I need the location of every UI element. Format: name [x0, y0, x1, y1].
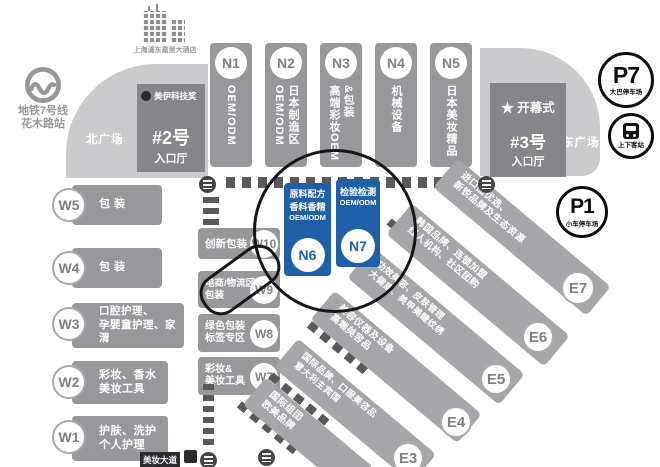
hall-n5: N5 日本美妆精品 [430, 43, 472, 167]
east-plaza-label: 东广场 [562, 134, 600, 150]
hall-w1-badge: W1 [52, 420, 86, 454]
hall-w4-label: 包 装 [99, 261, 162, 275]
parking-p7-badge: P7 大巴停车场 [598, 52, 654, 108]
entrance-3-number: #3号 [490, 128, 566, 153]
hall-w4-badge: W4 [52, 251, 86, 285]
shuttle-stop-label: 上下客站 [618, 139, 644, 149]
metro-station: 花木路站 [4, 118, 82, 131]
hall-e3-badge: E3 [392, 442, 424, 467]
hall-n3-badge: N3 [325, 47, 357, 79]
metro-station-label: 地铁7号线 花木路站 [4, 105, 82, 131]
hall-w5-label: 包 装 [99, 198, 162, 212]
booth-strip [203, 384, 214, 446]
hall-e4-badge: E4 [440, 406, 472, 438]
parking-p1-badge: P1 小车停车场 [556, 186, 608, 238]
hall-e5-badge: E5 [480, 363, 512, 395]
hall-w2: 彩妆、香水 美妆工具 [72, 361, 168, 404]
entrance-3-hall: ★ 开幕式 #3号 入口厅 [490, 83, 566, 177]
hotel-label: 上海浦东嘉里大酒店 [132, 45, 198, 55]
award-logo-icon [141, 91, 151, 101]
facility-icon [258, 449, 275, 466]
expo-floorplan-map: 北广场 东广场 地铁7号线 花木路站 上海浦东嘉里大酒店 美伊科技奖 #2号 入… [0, 0, 660, 467]
hall-n4: N4 机械设备 [375, 43, 417, 167]
hall-w2-badge: W2 [52, 365, 86, 399]
hall-n1: N1 OEM/ODM [210, 43, 252, 167]
entrance-2-hall: 美伊科技奖 #2号 入口厅 [137, 84, 205, 172]
shuttle-stop-badge: 上下客站 [608, 113, 654, 159]
bus-icon [623, 123, 639, 139]
star-icon: ★ [501, 101, 514, 115]
hall-n1-label: OEM/ODM [224, 85, 238, 163]
entrance-2-label: 入口厅 [137, 150, 205, 166]
north-plaza-label: 北广场 [86, 131, 124, 147]
hall-w3: 口腔护理、 孕婴童护理、家清 [72, 303, 184, 348]
hall-w3-badge: W3 [52, 307, 86, 341]
hall-e7-badge: E7 [561, 271, 595, 305]
hotel-icon [140, 8, 188, 44]
hall-n2-label2: OEM/ODM [272, 85, 286, 163]
parking-p7-label: 大巴停车场 [610, 86, 643, 96]
hall-n2: N2 日本制造区 OEM/ODM [265, 43, 307, 167]
facility-icon [200, 452, 217, 467]
partial-label: 美妆大道 [140, 452, 180, 467]
magnifier-circle [253, 149, 417, 313]
hall-n4-badge: N4 [380, 47, 412, 79]
hall-w1-label: 护肤、洗护 [99, 425, 168, 439]
hall-w8-badge: W8 [250, 320, 278, 348]
hall-n2-badge: N2 [270, 47, 302, 79]
parking-p1-label: 小车停车场 [566, 218, 599, 228]
hall-n4-label: 机械设备 [389, 85, 403, 163]
hall-n1-badge: N1 [215, 47, 247, 79]
hall-w3-label: 口腔护理、 [99, 305, 184, 319]
hall-n5-badge: N5 [435, 47, 467, 79]
metro-line: 地铁7号线 [4, 105, 82, 118]
opening-ceremony-label: 开幕式 [517, 101, 555, 115]
entrance-3-label: 入口厅 [490, 153, 566, 169]
hall-n5-label: 日本美妆精品 [444, 85, 458, 163]
award-label: 美伊科技奖 [154, 90, 197, 102]
facility-icon [199, 176, 216, 193]
partial-marker [184, 450, 197, 463]
metro-logo-icon [24, 66, 62, 104]
entrance-2-number: #2号 [137, 124, 205, 150]
hall-w2-label: 彩妆、香水 [99, 369, 168, 383]
hall-e6-badge: E6 [522, 321, 554, 353]
facility-icon [478, 176, 495, 193]
hall-w5-badge: W5 [52, 188, 86, 222]
hall-n2-label: 日本制造区 [286, 85, 300, 163]
